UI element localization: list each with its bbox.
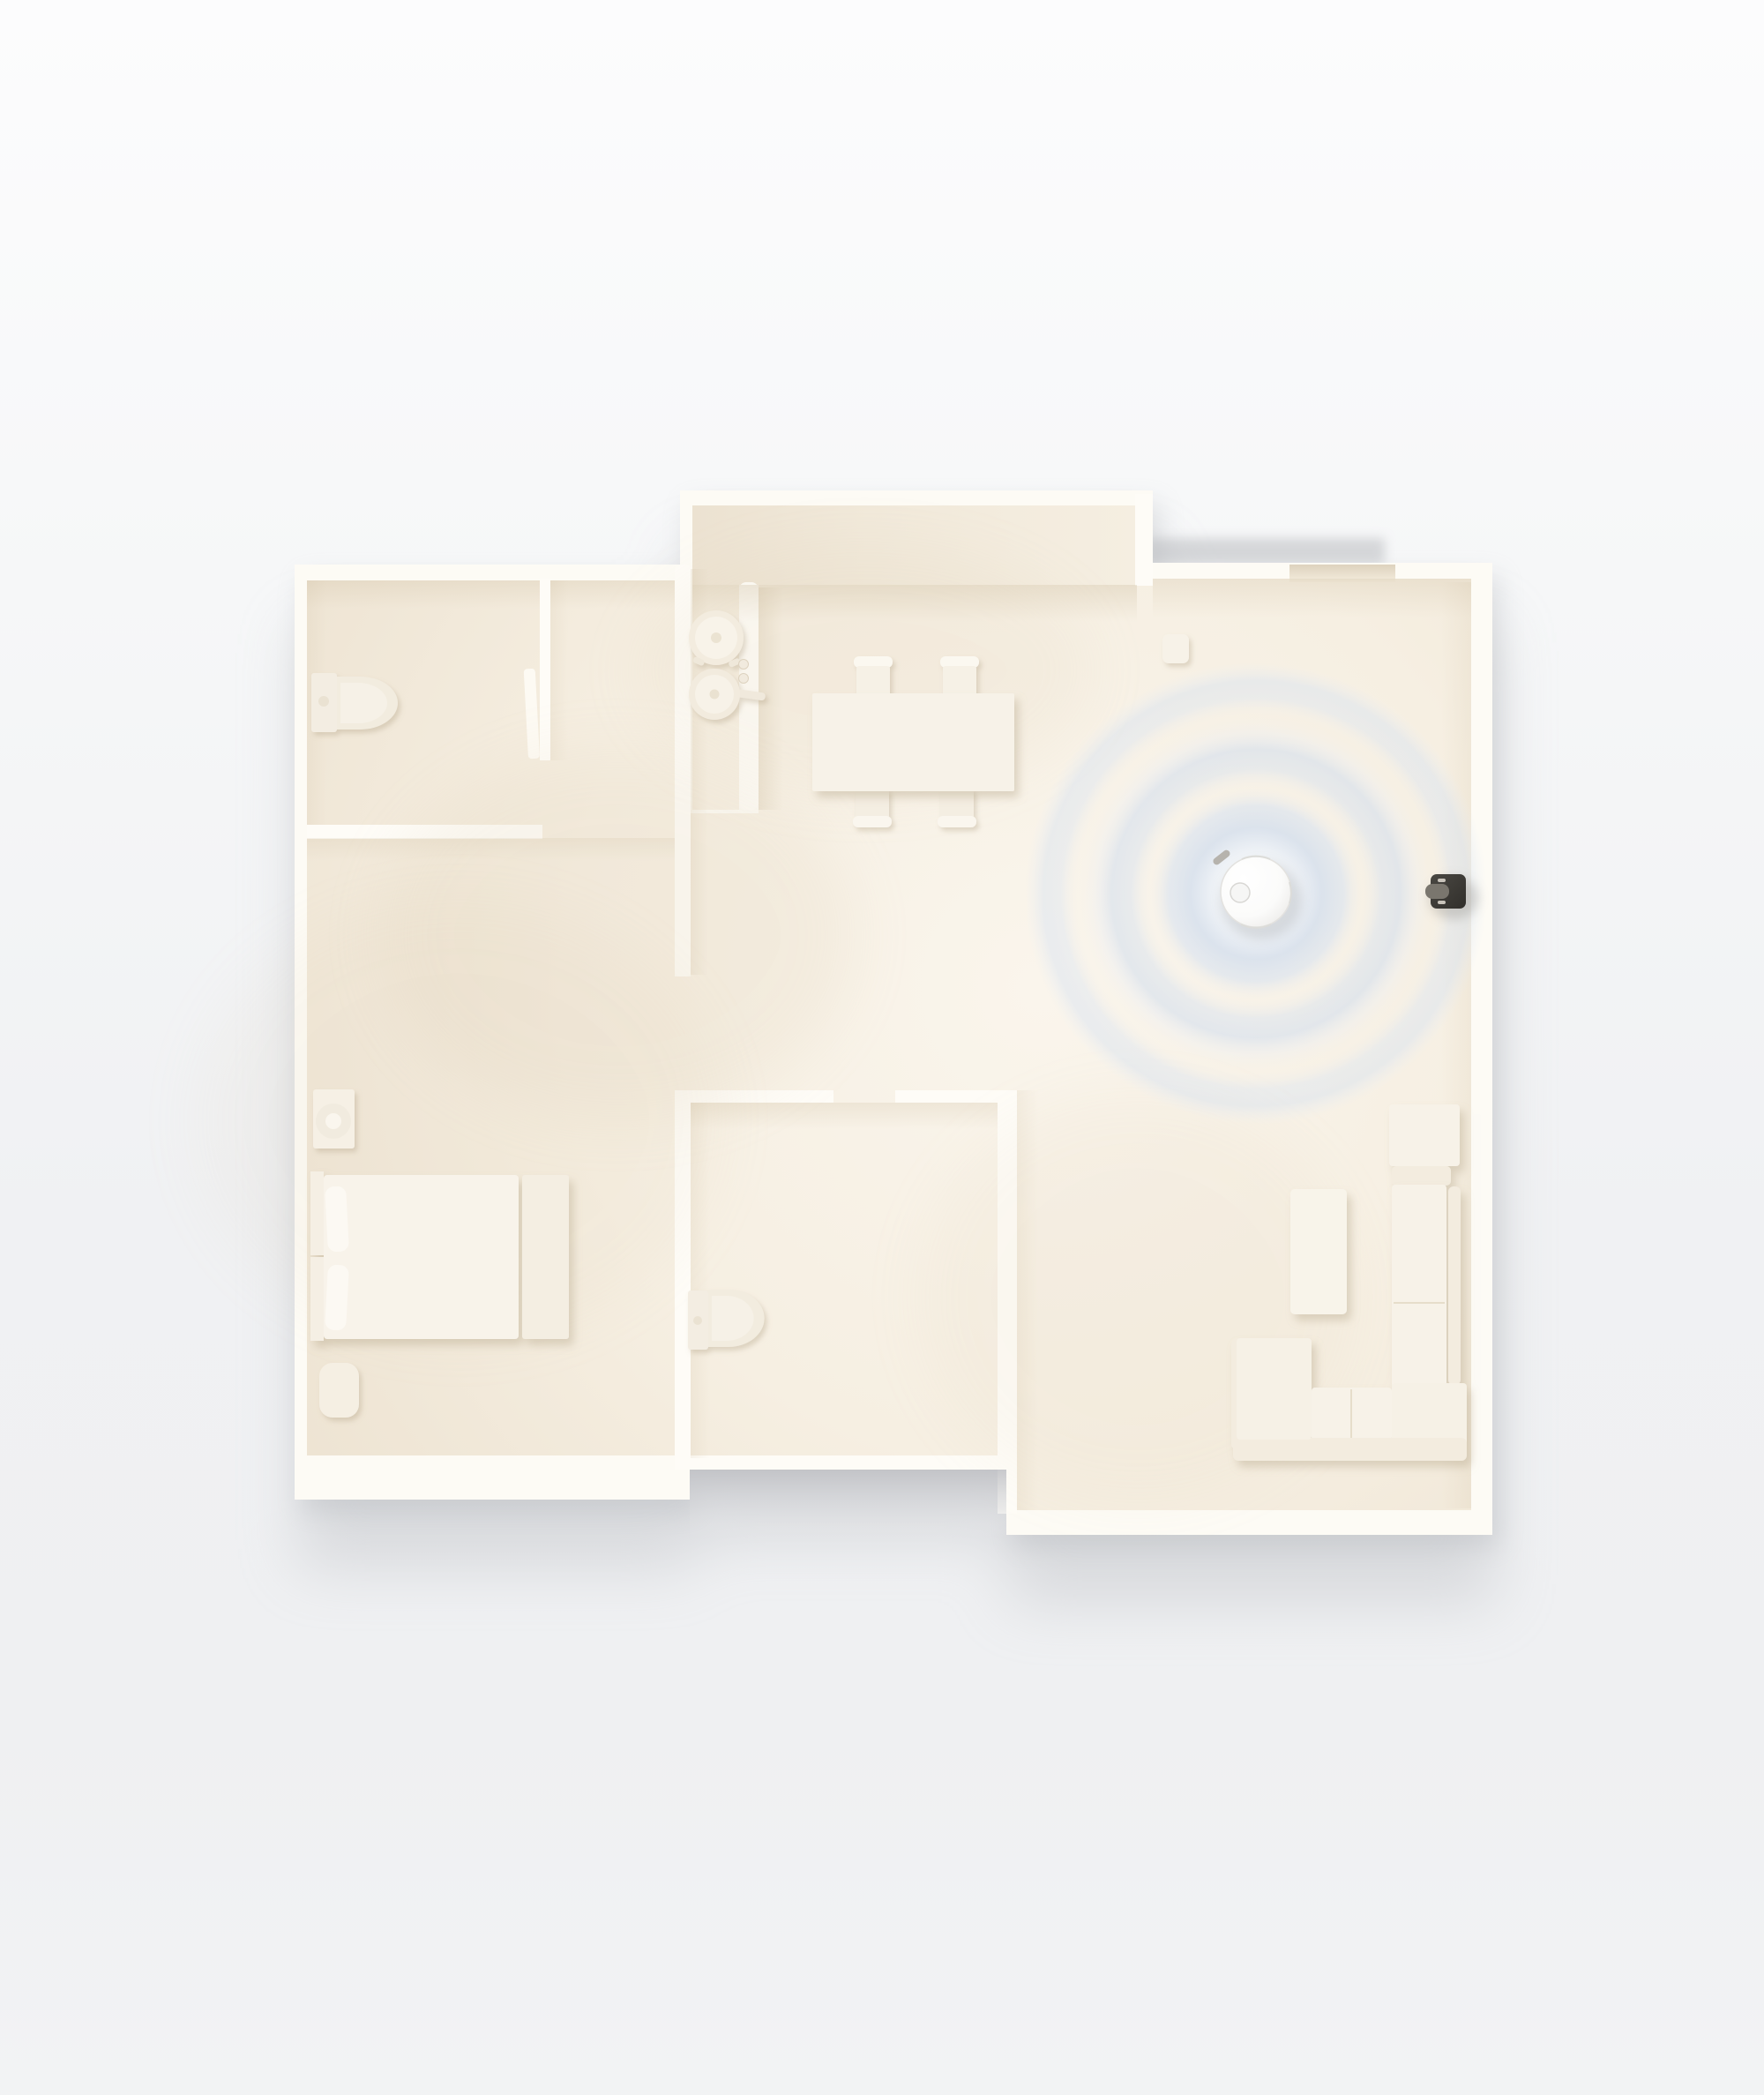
armchair — [1389, 1104, 1460, 1186]
lidar-turret — [1230, 883, 1250, 902]
pillow — [325, 1264, 349, 1330]
flush-button — [318, 696, 329, 707]
coffee-table — [1290, 1189, 1347, 1314]
entry-stool — [1162, 634, 1189, 663]
dining-chair — [854, 656, 893, 696]
footprint-notch-shadow — [690, 1470, 1006, 1537]
headboard — [310, 1257, 324, 1341]
dining-chair — [940, 656, 979, 696]
scene-svg — [0, 0, 1764, 2095]
dining-table — [812, 693, 1014, 791]
footboard-bench — [522, 1175, 569, 1339]
wall-ensuite-top-right — [895, 1090, 998, 1103]
sofa-back — [1448, 1186, 1461, 1385]
dock-contact — [1438, 879, 1446, 882]
wall-bathroom-divider — [540, 579, 550, 760]
dining-chair — [853, 789, 892, 827]
sofa-ottoman — [1237, 1338, 1312, 1440]
wall-ensuite-bottom — [691, 1455, 1006, 1470]
dock-contact — [1438, 901, 1446, 904]
wall-kitchen-right — [1135, 494, 1153, 586]
dock-notch — [1425, 884, 1449, 899]
pillow — [325, 1186, 349, 1252]
sliding-door — [1473, 1114, 1481, 1391]
stove-pot — [689, 610, 744, 668]
ottoman — [319, 1363, 359, 1418]
bed — [310, 1171, 569, 1341]
stage — [0, 0, 1764, 2095]
floor-ensuite-doorway — [833, 1090, 895, 1104]
headboard — [310, 1171, 324, 1255]
sofa-seats — [1392, 1185, 1446, 1388]
nightstand — [313, 1089, 355, 1149]
sofa-back — [1233, 1438, 1467, 1461]
mattress — [324, 1175, 519, 1339]
flush-button — [693, 1316, 702, 1325]
dining-chair — [938, 789, 976, 827]
